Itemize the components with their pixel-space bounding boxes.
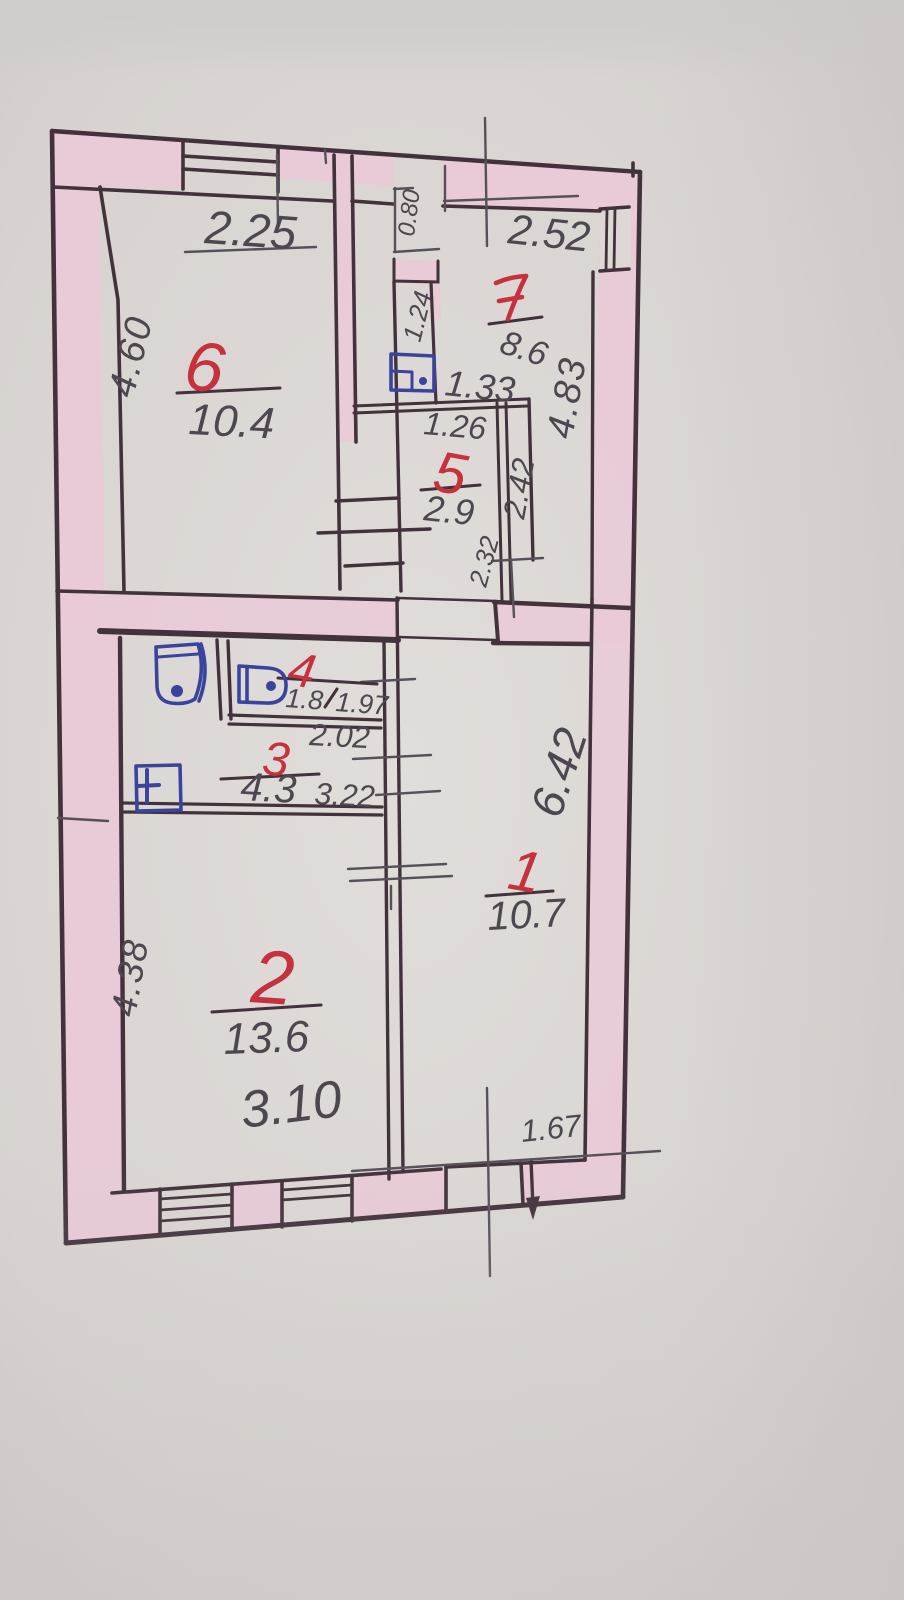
- svg-text:2.52: 2.52: [505, 205, 592, 260]
- svg-text:1.33: 1.33: [443, 362, 517, 410]
- svg-text:1.26: 1.26: [422, 405, 487, 446]
- svg-text:3.10: 3.10: [237, 1070, 345, 1140]
- svg-text:1.67: 1.67: [519, 1108, 584, 1149]
- svg-text:1.97: 1.97: [335, 687, 390, 721]
- svg-text:3.22: 3.22: [314, 776, 376, 814]
- svg-text:0.80: 0.80: [393, 187, 426, 237]
- svg-text:2.25: 2.25: [202, 200, 299, 259]
- svg-text:2.02: 2.02: [308, 717, 371, 755]
- svg-text:2: 2: [248, 934, 297, 1022]
